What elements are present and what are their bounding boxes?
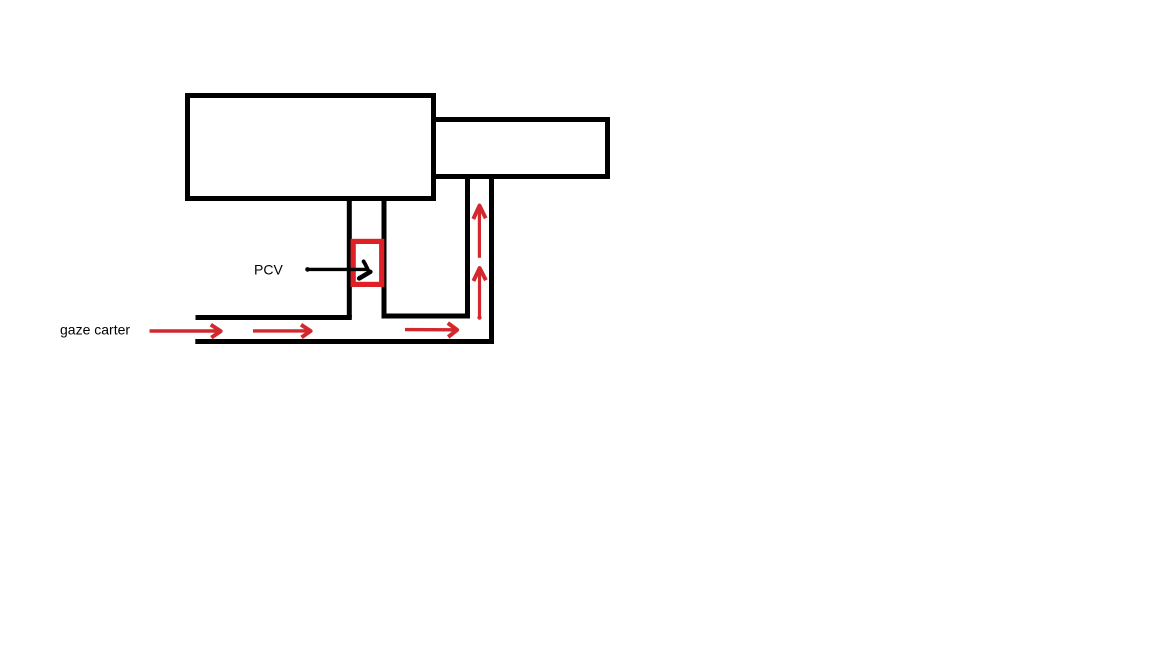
- svg-text:gaze carter: gaze carter: [60, 322, 130, 338]
- svg-text:PCV: PCV: [254, 262, 283, 278]
